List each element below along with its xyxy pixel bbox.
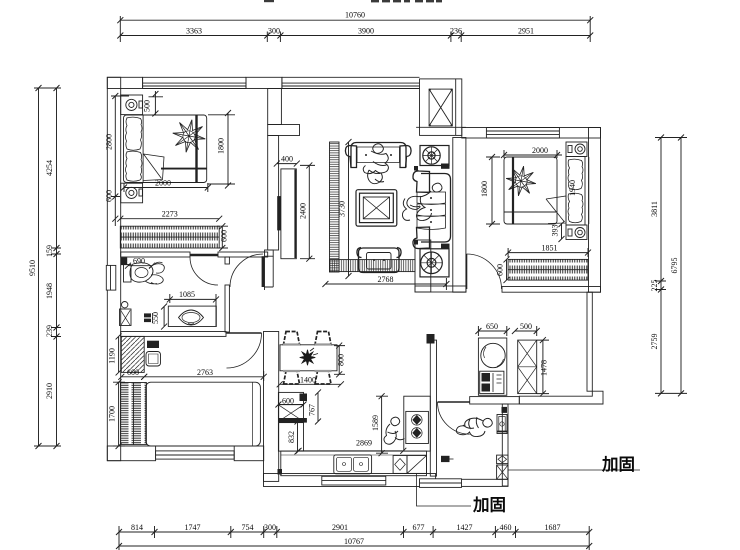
- svg-text:2273: 2273: [162, 210, 178, 219]
- svg-text:2869: 2869: [356, 438, 372, 447]
- svg-text:1085: 1085: [179, 290, 195, 299]
- svg-text:600: 600: [127, 368, 139, 377]
- svg-text:393: 393: [551, 225, 560, 237]
- svg-text:1687: 1687: [545, 523, 561, 532]
- svg-text:2000: 2000: [155, 179, 171, 188]
- svg-text:832: 832: [287, 431, 296, 443]
- svg-text:6795: 6795: [670, 258, 679, 274]
- svg-text:300: 300: [264, 523, 276, 532]
- svg-text:1427: 1427: [457, 523, 473, 532]
- svg-text:1851: 1851: [542, 244, 558, 253]
- svg-text:600: 600: [496, 264, 505, 276]
- svg-text:600: 600: [105, 190, 114, 202]
- svg-text:225: 225: [650, 280, 659, 292]
- svg-text:550: 550: [151, 312, 160, 324]
- svg-text:500: 500: [143, 100, 152, 112]
- svg-text:754: 754: [242, 523, 254, 532]
- svg-text:690: 690: [133, 257, 145, 266]
- svg-text:2000: 2000: [532, 146, 548, 155]
- svg-text:3363: 3363: [186, 27, 202, 36]
- svg-text:2768: 2768: [378, 275, 394, 284]
- svg-text:239: 239: [45, 325, 54, 337]
- svg-text:加固: 加固: [601, 455, 635, 474]
- svg-text:2910: 2910: [45, 383, 54, 399]
- svg-text:2400: 2400: [299, 203, 308, 219]
- svg-text:2759: 2759: [650, 334, 659, 350]
- svg-text:3900: 3900: [358, 27, 374, 36]
- svg-text:4254: 4254: [45, 160, 54, 176]
- svg-text:2951: 2951: [518, 27, 534, 36]
- svg-text:加固: 加固: [472, 496, 506, 515]
- svg-text:236: 236: [450, 27, 462, 36]
- svg-text:1190: 1190: [108, 348, 117, 364]
- svg-text:767: 767: [308, 404, 317, 416]
- svg-text:650: 650: [486, 322, 498, 331]
- svg-text:1940: 1940: [568, 180, 577, 196]
- svg-text:10767: 10767: [344, 537, 364, 546]
- svg-text:2901: 2901: [332, 523, 348, 532]
- svg-text:814: 814: [131, 523, 143, 532]
- svg-text:3730: 3730: [338, 201, 347, 217]
- svg-text:1747: 1747: [185, 523, 201, 532]
- svg-text:677: 677: [413, 523, 425, 532]
- svg-text:1800: 1800: [480, 181, 489, 197]
- svg-text:1478: 1478: [540, 360, 549, 376]
- svg-text:10760: 10760: [345, 11, 365, 20]
- svg-text:300: 300: [268, 27, 280, 36]
- svg-text:1400: 1400: [300, 375, 316, 384]
- svg-text:3811: 3811: [650, 201, 659, 217]
- svg-text:2763: 2763: [197, 368, 213, 377]
- svg-text:159: 159: [45, 245, 54, 257]
- svg-text:400: 400: [281, 155, 293, 164]
- svg-text:600: 600: [282, 397, 294, 406]
- svg-text:800: 800: [337, 354, 346, 366]
- svg-text:1589: 1589: [371, 415, 380, 431]
- svg-text:9510: 9510: [28, 260, 37, 276]
- svg-text:600: 600: [220, 230, 229, 242]
- svg-text:1700: 1700: [108, 406, 117, 422]
- svg-text:500: 500: [520, 322, 532, 331]
- svg-text:460: 460: [500, 523, 512, 532]
- svg-text:1800: 1800: [217, 138, 226, 154]
- svg-text:1948: 1948: [45, 283, 54, 299]
- svg-text:2800: 2800: [105, 134, 114, 150]
